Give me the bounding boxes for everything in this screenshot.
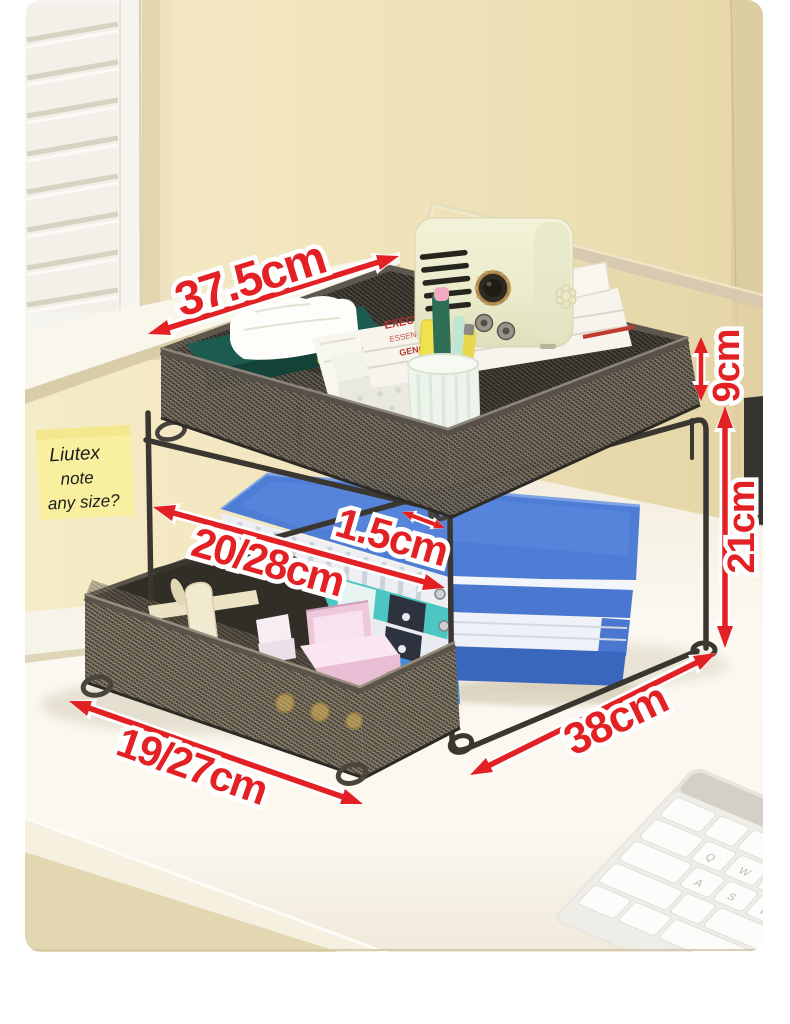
svg-text:21cm: 21cm bbox=[721, 480, 763, 573]
svg-text:any size?: any size? bbox=[47, 491, 120, 514]
svg-text:E: E bbox=[768, 880, 783, 892]
svg-text:Liutex: Liutex bbox=[49, 443, 102, 467]
svg-text:9cm: 9cm bbox=[706, 329, 748, 402]
svg-text:note: note bbox=[60, 468, 94, 489]
